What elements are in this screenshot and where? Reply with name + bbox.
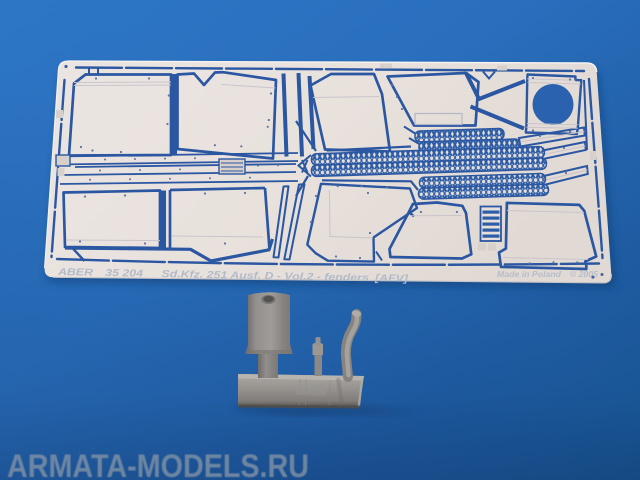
svg-text:Made in Poland © 2005: Made in Poland © 2005	[497, 269, 598, 279]
svg-text:ARMATA-MODELS.RU: ARMATA-MODELS.RU	[7, 448, 309, 480]
